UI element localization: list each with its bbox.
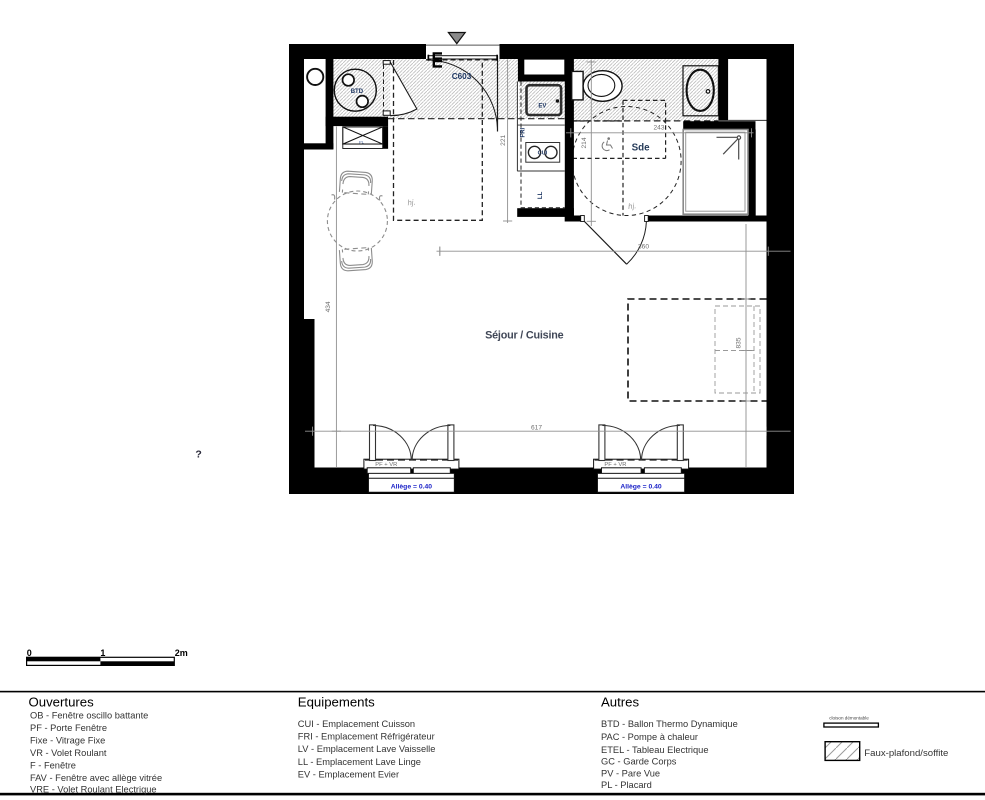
svg-text:FRI: FRI: [521, 127, 527, 137]
svg-text:PF + VR: PF + VR: [375, 462, 397, 468]
svg-text:EV: EV: [538, 103, 546, 109]
svg-text:PL - Placard: PL - Placard: [601, 780, 652, 790]
svg-text:?: ?: [195, 448, 201, 460]
svg-text:PAC - Pompe à chaleur: PAC - Pompe à chaleur: [601, 732, 698, 742]
svg-text:LL - Emplacement Lave Linge: LL - Emplacement Lave Linge: [298, 757, 421, 767]
svg-text:EV - Emplacement Evier: EV - Emplacement Evier: [298, 770, 399, 780]
svg-text:Allège = 0.40: Allège = 0.40: [620, 484, 662, 491]
svg-text:LL: LL: [538, 191, 544, 199]
svg-text:hj.: hj.: [628, 201, 637, 211]
svg-text:214: 214: [581, 137, 588, 148]
svg-text:LV - Emplacement Lave Vaissell: LV - Emplacement Lave Vaisselle: [298, 744, 436, 754]
svg-text:Ouvertures: Ouvertures: [29, 695, 95, 710]
svg-text:2m: 2m: [175, 648, 188, 658]
svg-text:VRE - Volet Roulant Electrique: VRE - Volet Roulant Electrique: [30, 784, 157, 794]
svg-text:OB - Fenêtre oscillo battante: OB - Fenêtre oscillo battante: [30, 711, 148, 721]
svg-text:Séjour / Cuisine: Séjour / Cuisine: [485, 329, 564, 341]
svg-text:FAV - Fenêtre avec allège vitr: FAV - Fenêtre avec allège vitrée: [30, 773, 162, 783]
svg-text:Faux-plafond/soffite: Faux-plafond/soffite: [864, 748, 948, 759]
svg-text:BTD: BTD: [351, 89, 364, 95]
svg-text:221: 221: [500, 134, 507, 145]
svg-text:PV - Pare Vue: PV - Pare Vue: [601, 769, 660, 779]
svg-text:PL: PL: [359, 140, 365, 145]
svg-text:C603: C603: [452, 72, 472, 81]
svg-text:PF + VR: PF + VR: [604, 462, 626, 468]
svg-text:hj.: hj.: [407, 198, 416, 208]
svg-text:GC - Garde Corps: GC - Garde Corps: [601, 757, 677, 767]
svg-text:Equipements: Equipements: [298, 695, 375, 710]
svg-text:VR - Volet Roulant: VR - Volet Roulant: [30, 748, 107, 758]
svg-text:0: 0: [27, 648, 32, 658]
svg-text:Autres: Autres: [601, 695, 640, 710]
svg-text:CUI: CUI: [538, 151, 548, 157]
svg-text:FRI - Emplacement Réfrigérateu: FRI - Emplacement Réfrigérateur: [298, 732, 435, 742]
svg-text:Fixe - Vitrage Fixe: Fixe - Vitrage Fixe: [30, 736, 105, 746]
svg-text:PF - Porte Fenêtre: PF - Porte Fenêtre: [30, 723, 107, 733]
svg-text:1: 1: [100, 648, 105, 658]
svg-text:360: 360: [638, 244, 649, 251]
svg-text:ETEL - Tableau Electrique: ETEL - Tableau Electrique: [601, 745, 709, 755]
svg-text:Allège = 0.40: Allège = 0.40: [391, 484, 433, 491]
svg-text:243: 243: [653, 125, 664, 132]
svg-text:434: 434: [325, 301, 332, 312]
svg-text:F - Fenêtre: F - Fenêtre: [30, 761, 76, 771]
svg-text:835: 835: [736, 337, 743, 348]
svg-text:617: 617: [531, 425, 542, 432]
svg-text:CUI - Emplacement Cuisson: CUI - Emplacement Cuisson: [298, 719, 415, 729]
svg-text:Sde: Sde: [632, 142, 651, 153]
svg-text:cloison démontable: cloison démontable: [829, 715, 869, 720]
svg-text:BTD - Ballon Thermo Dynamique: BTD - Ballon Thermo Dynamique: [601, 719, 738, 729]
